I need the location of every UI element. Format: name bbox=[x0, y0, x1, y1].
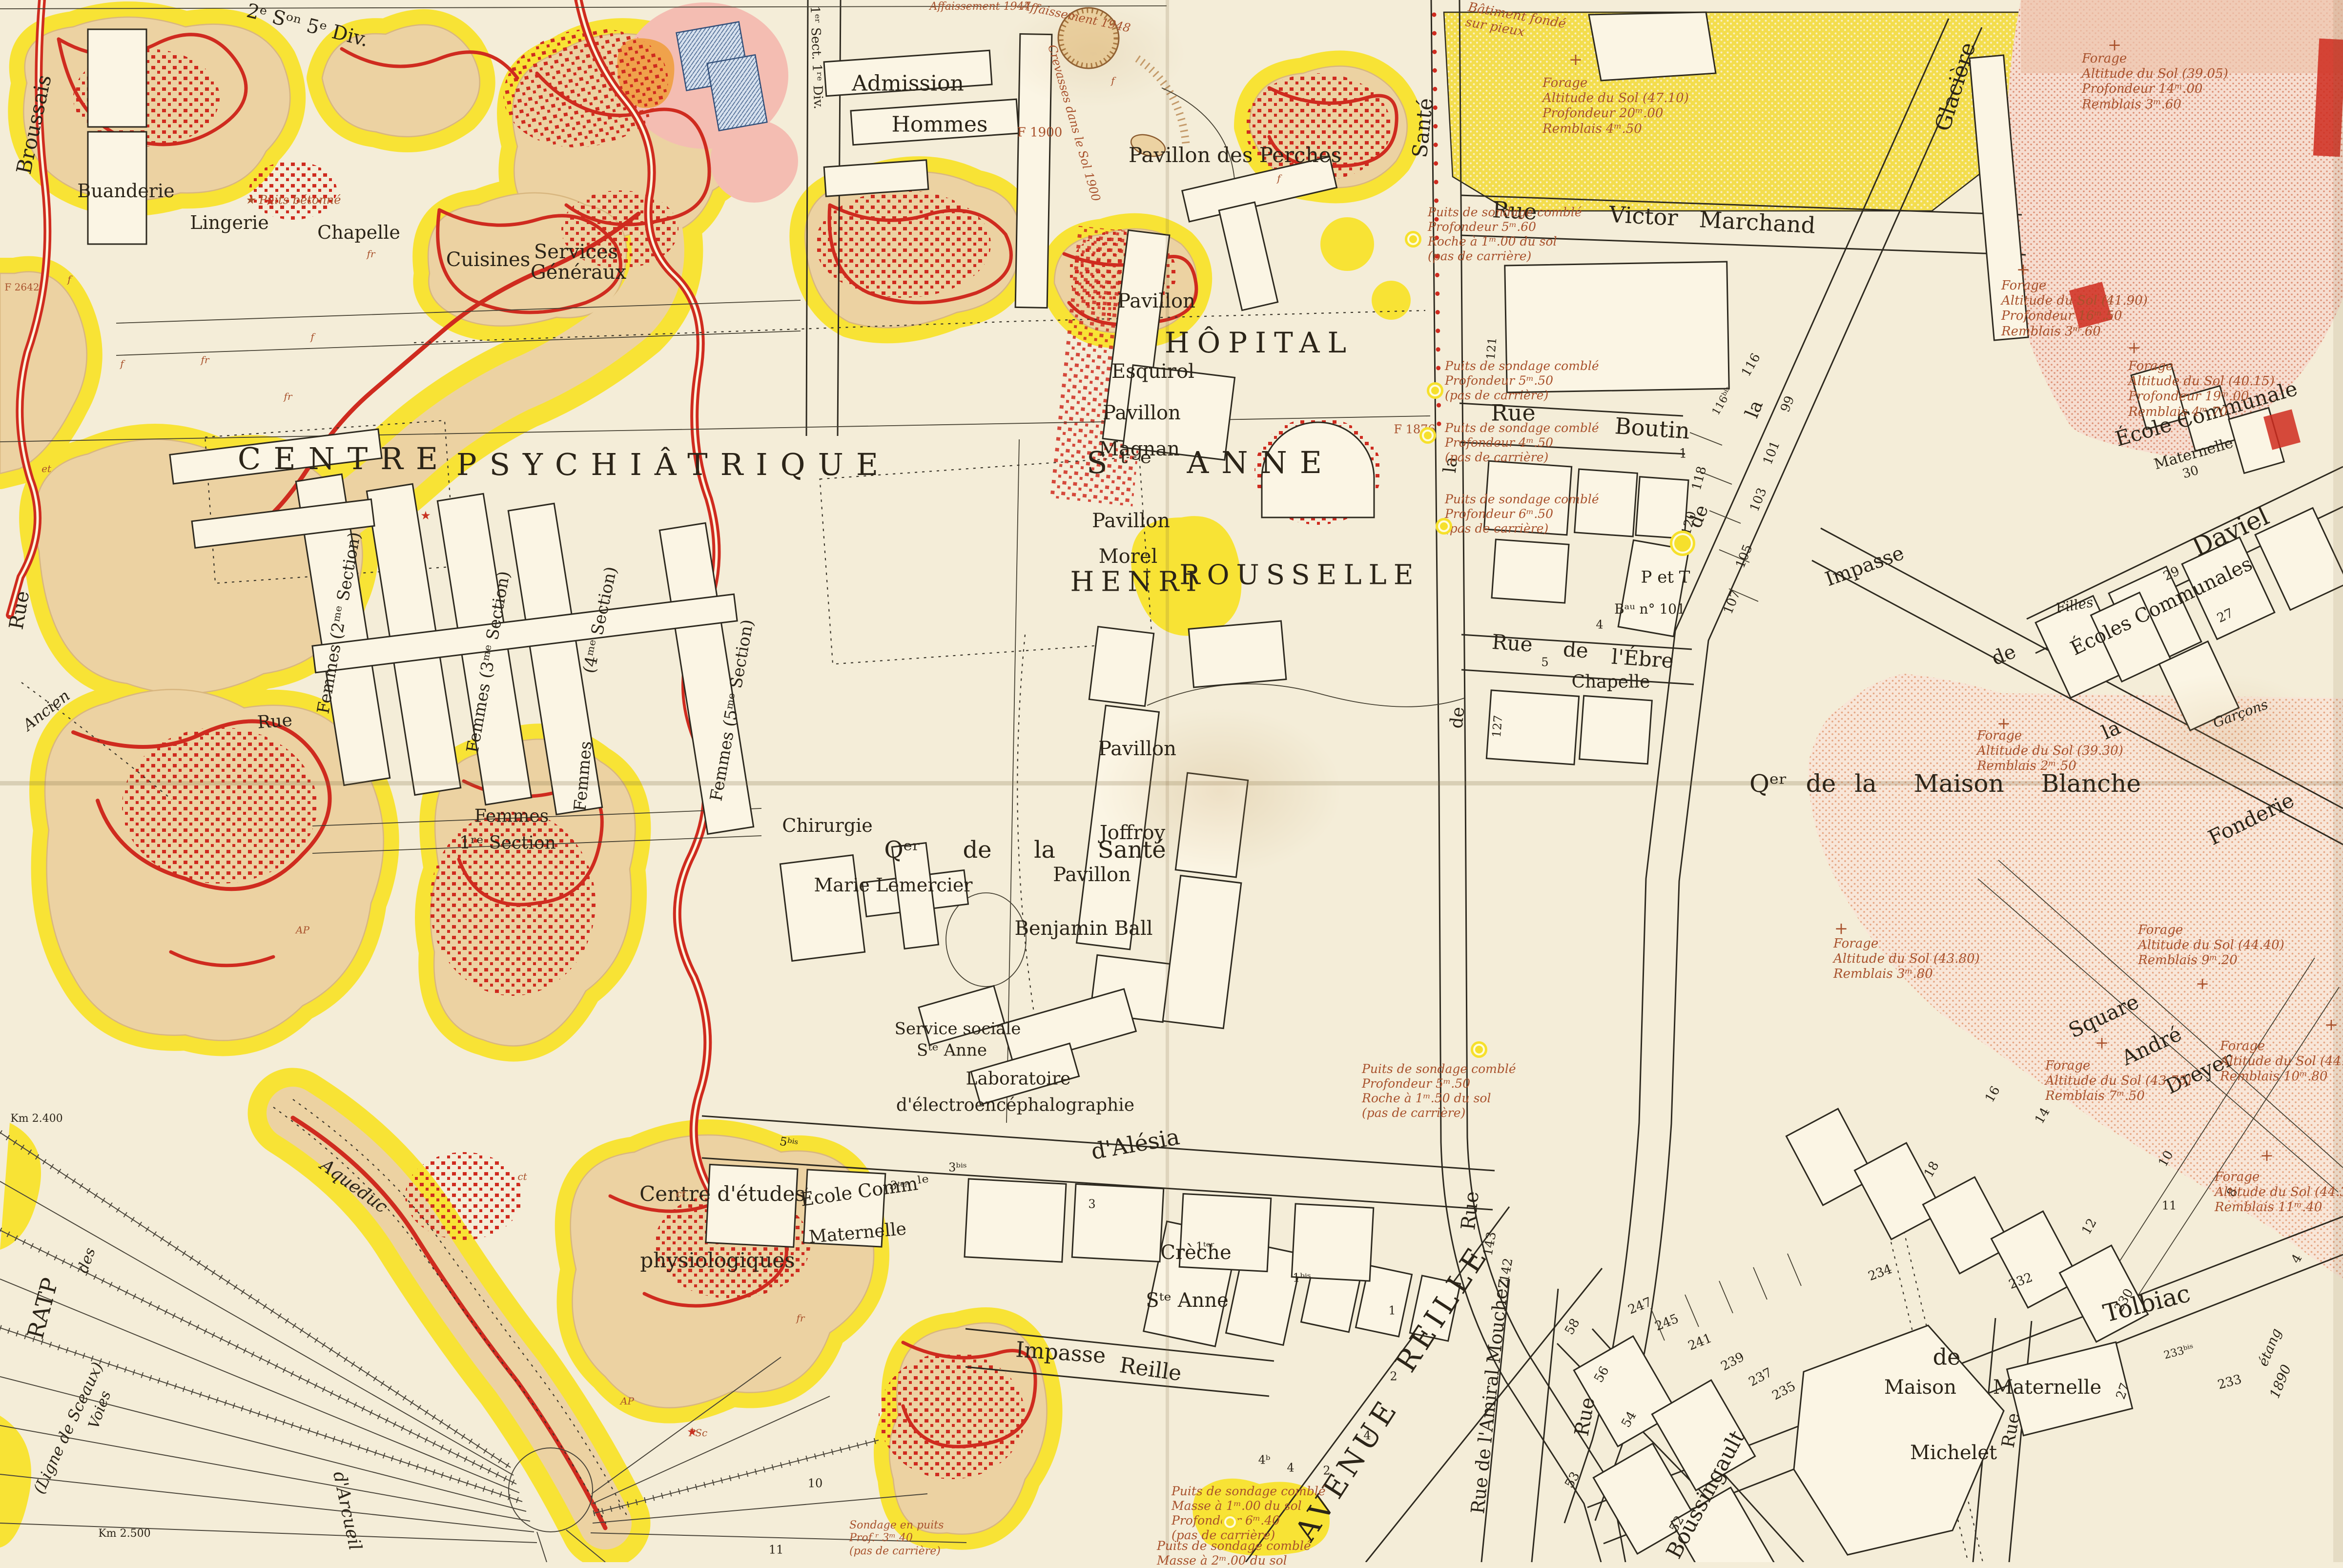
map-label: REILLE bbox=[1388, 1238, 1497, 1379]
map-label: École Commˡᵉ bbox=[799, 1171, 931, 1211]
map-label: 16 bbox=[1982, 1084, 2004, 1105]
map-label: 4ᵇ bbox=[1258, 1453, 1271, 1467]
map-label: 1 bbox=[1679, 446, 1687, 461]
map-label: f bbox=[67, 273, 71, 285]
map-label: Hommes bbox=[892, 112, 988, 138]
map-label: Pavillon bbox=[1098, 737, 1176, 761]
map-label: 14 bbox=[2032, 1105, 2054, 1127]
map-label: Broussais bbox=[12, 73, 57, 176]
map-label: Boussingault bbox=[1662, 1426, 1750, 1563]
map-label: Glacière bbox=[1930, 40, 1981, 135]
map-label: Marie Lemercier bbox=[814, 874, 973, 897]
map-label: 235 bbox=[1770, 1379, 1798, 1404]
map-label: Femmes (2ᵐᵉ Section) bbox=[313, 531, 365, 715]
map-label: 2 bbox=[1390, 1370, 1397, 1384]
map-label: Service sociale bbox=[895, 1019, 1021, 1039]
map-label: Rue bbox=[1570, 1396, 1600, 1438]
map-label: Bâtiment fondé sur pieux bbox=[1464, 0, 1567, 47]
map-label: Puits de sondage comblé Masse à 2ᵐ.00 du… bbox=[1157, 1539, 1311, 1568]
map-label: Puits de sondage comblé Profondeur 5ᵐ.60… bbox=[1428, 205, 1582, 264]
map-label: 3ᵗᵉʳ bbox=[889, 1178, 909, 1195]
map-label: AP bbox=[620, 1395, 634, 1407]
map-label: 10 bbox=[2156, 1148, 2177, 1170]
map-label: f bbox=[1277, 172, 1280, 184]
map-label: 118 bbox=[1689, 465, 1710, 492]
map-label: 99 bbox=[1778, 394, 1798, 414]
map-label: 234 bbox=[1866, 1262, 1894, 1284]
map-label: Daviel bbox=[2188, 501, 2274, 563]
map-label: Puits de sondage comblé Profondeur 6ᵐ.50… bbox=[1445, 492, 1599, 536]
map-label: Lingerie bbox=[190, 212, 268, 234]
map-label: 1890 bbox=[2266, 1362, 2295, 1401]
map-label: de bbox=[1446, 706, 1469, 730]
map-label: l'Ébre bbox=[1611, 644, 1675, 673]
map-label: Forage Altitude du Sol (40.15) Profondeu… bbox=[2128, 359, 2275, 420]
map-label: 1ʳᵉ Section bbox=[459, 832, 556, 853]
map-label: f bbox=[120, 358, 123, 370]
map-label: Femmes bbox=[474, 805, 549, 826]
map-label: 12 bbox=[2079, 1216, 2100, 1238]
map-label: (4ᵐᵉ Section) bbox=[579, 565, 621, 675]
map-label: Chapelle bbox=[317, 222, 400, 244]
map-label: de bbox=[1988, 640, 2019, 671]
map-label: Crevasses dans le Sol 1900 bbox=[1045, 43, 1103, 203]
map-label: Forage Altitude du Sol (44.40) Remblais … bbox=[2138, 923, 2284, 969]
label-layer: CENTREPSYCHIÂTRIQUESᵗᵉ ANNEHÔPITALHENRIR… bbox=[0, 0, 2343, 1562]
map-label: Affaissement 1947 bbox=[929, 0, 1030, 13]
map-label: Maternelle bbox=[1993, 1376, 2101, 1399]
map-label: 5 bbox=[1541, 656, 1548, 670]
map-label: Km 2.500 bbox=[98, 1527, 150, 1540]
map-label: 101 bbox=[1760, 439, 1784, 467]
map-label: 1ᵇⁱˢ bbox=[1293, 1271, 1311, 1285]
map-label: 58 bbox=[1562, 1316, 1583, 1338]
map-label: Rue bbox=[4, 589, 34, 632]
forage-cross-marker: + bbox=[2016, 260, 2031, 279]
map-label: Forage Altitude du Sol (44.25) Remblais … bbox=[2220, 1039, 2343, 1085]
map-label: Km 2.400 bbox=[10, 1113, 62, 1125]
map-label: d'Arcueil bbox=[329, 1469, 366, 1552]
map-label: 5ᵇⁱˢ bbox=[779, 1135, 799, 1152]
map-label: CENTRE bbox=[238, 441, 451, 477]
map-label: Femmes bbox=[570, 741, 596, 812]
map-label: Boutin bbox=[1614, 413, 1690, 445]
map-label: fr bbox=[367, 248, 375, 260]
map-label: Sᵗᵉ Anne bbox=[917, 1041, 987, 1061]
map-label: Garçons bbox=[2211, 696, 2270, 731]
forage-cross-marker: + bbox=[2127, 338, 2141, 357]
map-label: 103 bbox=[1747, 486, 1770, 514]
map-label: Pavillon bbox=[1092, 509, 1170, 533]
map-label: Rue bbox=[1998, 1411, 2025, 1449]
map-label: 241 bbox=[1686, 1331, 1714, 1354]
map-label: 247 bbox=[1626, 1295, 1654, 1318]
map-label: physiologiques bbox=[640, 1248, 795, 1273]
map-label: Buanderie bbox=[77, 180, 174, 203]
well-dot-marker bbox=[1670, 531, 1695, 556]
historic-quarry-map: CENTREPSYCHIÂTRIQUESᵗᵉ ANNEHÔPITALHENRIR… bbox=[0, 0, 2343, 1562]
map-label: Chirurgie bbox=[782, 815, 872, 837]
map-label: P et T bbox=[1641, 568, 1690, 588]
map-label: 245 bbox=[1653, 1311, 1681, 1335]
map-label: Laboratoire bbox=[966, 1068, 1071, 1089]
map-label: 53 bbox=[1562, 1469, 1583, 1491]
forage-cross-marker: + bbox=[2108, 35, 2122, 55]
map-label: 233 bbox=[2216, 1372, 2243, 1393]
map-label: Forage Altitude du Sol (44.35) Remblais … bbox=[2215, 1170, 2343, 1216]
map-label: AP bbox=[296, 924, 309, 936]
map-label: Impasse bbox=[1015, 1337, 1107, 1369]
map-label: 237 bbox=[1747, 1365, 1775, 1390]
map-label: Marchand bbox=[1699, 206, 1816, 239]
map-label: Forage Altitude du Sol (43.75) Remblais … bbox=[2045, 1058, 2192, 1104]
map-label: 239 bbox=[1719, 1350, 1747, 1375]
map-label: Magnan bbox=[1099, 437, 1180, 461]
map-label: Forage Altitude du Sol (41.90) Profondeu… bbox=[2001, 278, 2148, 339]
well-dot-marker bbox=[1419, 427, 1436, 444]
map-label: Fonderie bbox=[2204, 788, 2298, 850]
map-label: d'électroencéphalographie bbox=[896, 1094, 1134, 1115]
map-label: 29 bbox=[2161, 564, 2182, 584]
map-label: et bbox=[41, 463, 51, 475]
well-dot-marker bbox=[1405, 231, 1421, 248]
map-label: 107 bbox=[1721, 588, 1744, 617]
map-label: Santé bbox=[1408, 97, 1439, 159]
well-dot-marker bbox=[1436, 518, 1452, 535]
map-label: 27 bbox=[2114, 1381, 2134, 1402]
map-label: 10 bbox=[808, 1477, 823, 1491]
map-label: 4 bbox=[1363, 1429, 1371, 1443]
forage-cross-marker: + bbox=[1569, 50, 1583, 69]
map-label: Admission bbox=[852, 71, 964, 97]
map-label: 1ᵉʳ Sect. 1ʳᵉ Div. bbox=[807, 6, 826, 110]
map-label: PSYCHIÂTRIQUE bbox=[456, 447, 891, 483]
map-label: Pavillon bbox=[1103, 401, 1181, 425]
map-label: 4 bbox=[1287, 1461, 1294, 1475]
map-label: Morel bbox=[1099, 545, 1158, 568]
map-label: Chapelle bbox=[1572, 671, 1650, 692]
map-label: Centre d'études bbox=[639, 1182, 805, 1206]
map-label: Impasse bbox=[1822, 541, 1907, 592]
map-label: Forage Altitude du Sol (39.05) Profondeu… bbox=[2082, 51, 2228, 112]
map-label: d'Alésia bbox=[1089, 1123, 1182, 1165]
map-label: 121 bbox=[1484, 337, 1500, 360]
map-label: de bbox=[1562, 637, 1589, 663]
map-label: 116ᵇⁱˢ bbox=[1710, 385, 1736, 417]
map-label: 27 bbox=[2215, 606, 2236, 626]
map-label: Femmes (5ᵐᵉ Section) bbox=[706, 618, 758, 803]
map-label: f bbox=[310, 331, 314, 343]
map-label: Rue bbox=[257, 710, 293, 733]
map-label: fr bbox=[797, 1312, 805, 1324]
map-label: Aqueduc bbox=[316, 1155, 392, 1218]
map-label: 2 bbox=[1323, 1464, 1330, 1478]
map-label: Pavillon des Perches bbox=[1129, 143, 1341, 167]
map-label: Puits de sondage comblé Profondeur 4ᵐ.50… bbox=[1445, 421, 1599, 465]
map-label: 232 bbox=[2007, 1270, 2035, 1293]
map-label: fr bbox=[201, 354, 209, 366]
forage-cross-marker: + bbox=[2260, 1146, 2274, 1165]
map-label: Forage Altitude du Sol (47.10) Profondeu… bbox=[1542, 76, 1689, 137]
map-label: Filles bbox=[2055, 594, 2095, 617]
map-label: ct bbox=[676, 1188, 685, 1199]
map-label: Femmes (3ᵐᵉ Section) bbox=[463, 570, 514, 754]
map-label: ★ Puits bétonné bbox=[245, 193, 341, 207]
map-label: 54 bbox=[1619, 1409, 1640, 1430]
map-label: Benjamin Ball bbox=[1014, 917, 1152, 940]
map-label: 105 bbox=[1733, 542, 1756, 571]
well-dot-marker bbox=[1471, 1041, 1487, 1058]
map-label: 11 bbox=[769, 1543, 784, 1557]
map-label: de bbox=[1933, 1343, 1961, 1370]
map-label: Esquirol bbox=[1111, 360, 1194, 383]
map-label: Maternelle bbox=[808, 1218, 907, 1248]
well-dot-marker bbox=[1427, 382, 1443, 399]
survey-star-marker: ★ bbox=[265, 194, 275, 208]
map-label: 127 bbox=[1490, 715, 1506, 738]
map-label: 18 bbox=[1921, 1159, 1943, 1180]
map-label: ct bbox=[517, 1171, 527, 1182]
map-label: Pavillon bbox=[1053, 863, 1131, 887]
map-label: Michelet bbox=[1910, 1441, 1997, 1465]
map-label: 11 bbox=[2162, 1199, 2177, 1213]
map-label: 233ᵇⁱˢ bbox=[2162, 1342, 2195, 1362]
map-label: Pavillon bbox=[1117, 289, 1195, 313]
map-label: Forage Altitude du Sol (39.30) Remblais … bbox=[1977, 728, 2123, 774]
map-label: Bᵃᵘ n° 101 bbox=[1614, 601, 1685, 618]
map-label: Puits de sondage comblé Profondeur 5ᵐ.50… bbox=[1362, 1062, 1516, 1120]
forage-cross-marker: + bbox=[1834, 919, 1849, 938]
map-label: 56 bbox=[1591, 1364, 1613, 1385]
map-label: Joffroy bbox=[1100, 821, 1165, 845]
map-label: Cuisines bbox=[446, 248, 530, 271]
map-label: 1ᵗᵉʳ bbox=[1196, 1240, 1215, 1254]
map-label: 3ᵇⁱˢ bbox=[948, 1161, 967, 1175]
map-label: Puits de sondage comblé Profondeur 5ᵐ.50… bbox=[1445, 359, 1599, 403]
map-label: fr bbox=[284, 391, 292, 402]
map-label: Maison bbox=[1884, 1376, 1956, 1399]
map-label: Rue bbox=[1457, 1190, 1484, 1231]
map-label: 1 bbox=[1388, 1304, 1396, 1318]
forage-cross-marker: + bbox=[2196, 974, 2210, 993]
map-label: Généraux bbox=[531, 261, 626, 284]
map-label: F 1900 bbox=[1017, 125, 1062, 140]
map-label: Forage Altitude du Sol (43.80) Remblais … bbox=[1833, 936, 1980, 982]
map-label: Sondage en puits Prof.ʳ 3ᵐ.40 (pas de ca… bbox=[849, 1519, 944, 1558]
map-label: Reille bbox=[1118, 1353, 1183, 1387]
map-label: Affaissement 1948 bbox=[1021, 0, 1132, 36]
map-label: f bbox=[1111, 75, 1114, 86]
map-label: 4 bbox=[2288, 1252, 2305, 1266]
map-label: Victor bbox=[1608, 201, 1679, 231]
map-label: 143 bbox=[1480, 1231, 1500, 1257]
map-label: 4 bbox=[1596, 618, 1603, 632]
map-label: 2ᵉ Sᵒⁿ 5ᵉ Div. bbox=[244, 0, 371, 52]
map-label: ROUSSELLE bbox=[1179, 558, 1420, 591]
map-label: Services bbox=[534, 240, 618, 264]
map-label: Sᵗᵉ Anne bbox=[1146, 1289, 1229, 1312]
map-label: des bbox=[74, 1245, 100, 1276]
map-label: Ancien bbox=[19, 686, 73, 735]
well-dot-marker bbox=[1222, 1514, 1238, 1530]
map-label: F 2642 bbox=[4, 281, 39, 293]
map-label: 3 bbox=[1088, 1197, 1095, 1212]
survey-star-marker: ★ bbox=[687, 1425, 698, 1439]
map-label: Puits de sondage comblé Masse à 1ᵐ.00 du… bbox=[1171, 1484, 1326, 1543]
map-label: Rue de l'Amiral Mouchez bbox=[1467, 1278, 1514, 1515]
map-label: RATP bbox=[22, 1275, 64, 1342]
forage-cross-marker: + bbox=[2095, 1033, 2109, 1052]
forage-cross-marker: + bbox=[1997, 714, 2011, 733]
survey-star-marker: ★ bbox=[420, 509, 431, 522]
forage-cross-marker: + bbox=[2324, 1015, 2339, 1034]
map-label: 116 bbox=[1739, 351, 1764, 380]
map-label: HÔPITAL bbox=[1165, 326, 1354, 360]
map-label: la bbox=[1741, 397, 1768, 421]
map-label: Rue bbox=[1491, 630, 1534, 657]
